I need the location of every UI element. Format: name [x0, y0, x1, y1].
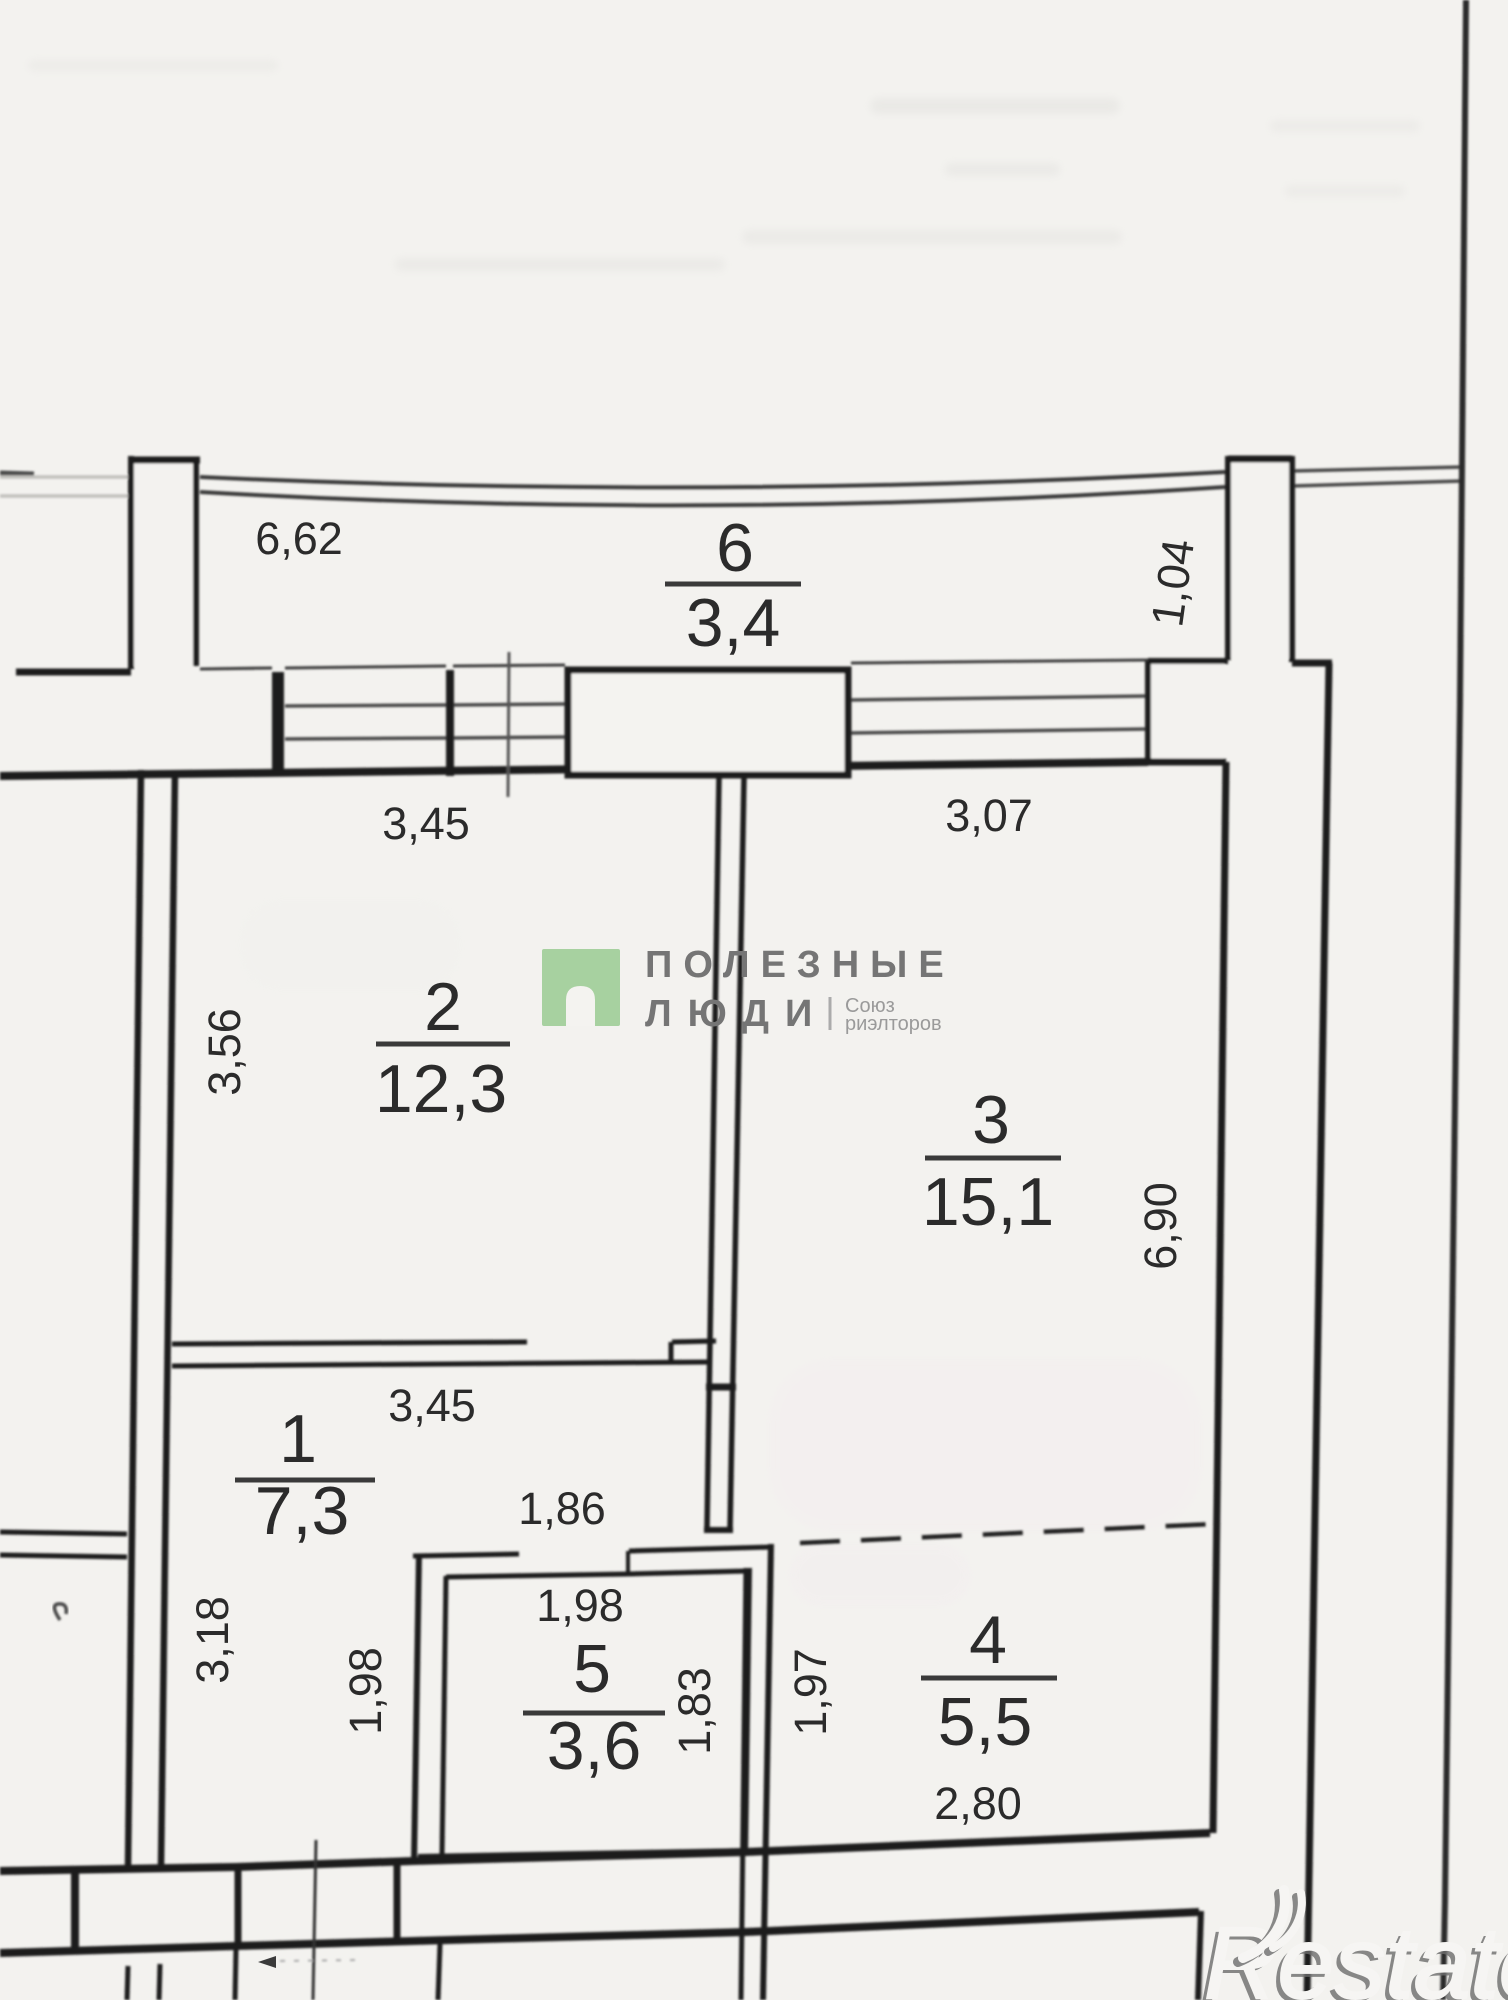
svg-text:12,3: 12,3 [375, 1051, 507, 1127]
svg-text:3,56: 3,56 [199, 1008, 250, 1096]
svg-text:ПОЛЕЗНЫЕ: ПОЛЕЗНЫЕ [645, 944, 955, 986]
svg-text:3,18: 3,18 [187, 1596, 238, 1684]
svg-text:2: 2 [424, 969, 462, 1045]
svg-text:6,62: 6,62 [255, 513, 343, 564]
svg-text:3,07: 3,07 [945, 790, 1033, 841]
svg-text:3,6: 3,6 [547, 1708, 642, 1784]
svg-text:3,45: 3,45 [382, 798, 470, 849]
svg-text:1,98: 1,98 [340, 1647, 391, 1735]
svg-text:1,97: 1,97 [785, 1648, 836, 1736]
svg-text:3: 3 [972, 1082, 1010, 1158]
svg-text:1,83: 1,83 [669, 1667, 720, 1755]
svg-text:1,98: 1,98 [536, 1580, 624, 1631]
svg-text:6: 6 [716, 510, 754, 586]
svg-text:1: 1 [279, 1401, 317, 1477]
svg-text:6,90: 6,90 [1135, 1182, 1186, 1270]
svg-text:риэлторов: риэлторов [845, 1013, 942, 1035]
svg-text:4: 4 [969, 1602, 1007, 1678]
svg-text:7,3: 7,3 [255, 1473, 350, 1549]
svg-text:ЛЮДИ: ЛЮДИ [645, 993, 828, 1035]
svg-text:15,1: 15,1 [922, 1164, 1054, 1240]
svg-text:2,80: 2,80 [934, 1778, 1022, 1829]
svg-text:5: 5 [573, 1631, 611, 1707]
svg-text:3,45: 3,45 [388, 1380, 476, 1431]
svg-text:3,4: 3,4 [686, 585, 781, 661]
svg-text:1,86: 1,86 [518, 1483, 606, 1534]
svg-text:5,5: 5,5 [938, 1684, 1033, 1760]
